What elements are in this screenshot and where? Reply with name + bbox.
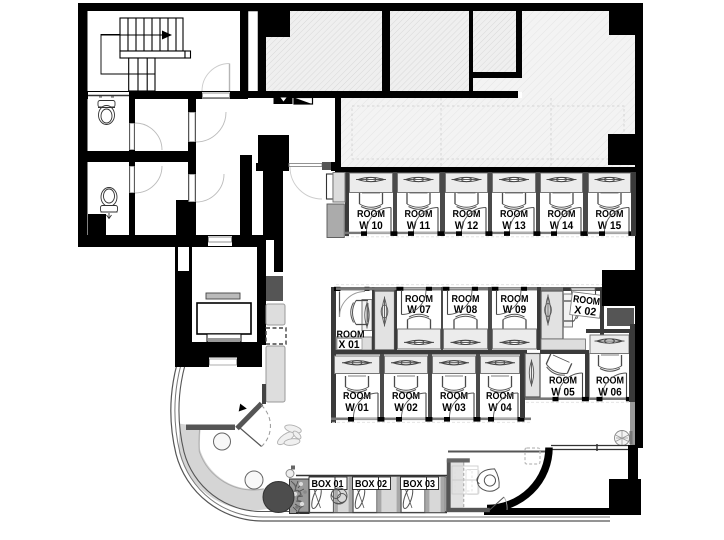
svg-text:ROOM: ROOM — [548, 209, 576, 220]
svg-text:ROOM: ROOM — [596, 209, 624, 220]
svg-text:ROOM: ROOM — [405, 209, 433, 220]
svg-text:ROOM: ROOM — [549, 376, 577, 387]
svg-text:ROOM: ROOM — [596, 376, 624, 387]
svg-text:W 10: W 10 — [359, 220, 383, 232]
svg-text:ROOM: ROOM — [392, 391, 420, 402]
svg-text:ROOM: ROOM — [440, 391, 468, 402]
svg-text:W 14: W 14 — [550, 220, 574, 232]
svg-text:W 12: W 12 — [455, 220, 479, 232]
svg-text:W 04: W 04 — [488, 402, 512, 414]
svg-text:W 13: W 13 — [502, 220, 526, 232]
svg-text:W 15: W 15 — [598, 220, 622, 232]
svg-text:BOX 03: BOX 03 — [403, 479, 435, 490]
svg-text:BOX 02: BOX 02 — [355, 479, 387, 490]
svg-text:W 05: W 05 — [551, 386, 575, 398]
svg-text:ROOM: ROOM — [343, 391, 371, 402]
svg-text:W 11: W 11 — [407, 220, 431, 232]
svg-text:X 01: X 01 — [339, 339, 360, 351]
svg-text:ROOM: ROOM — [453, 209, 481, 220]
svg-text:W 01: W 01 — [345, 402, 369, 414]
